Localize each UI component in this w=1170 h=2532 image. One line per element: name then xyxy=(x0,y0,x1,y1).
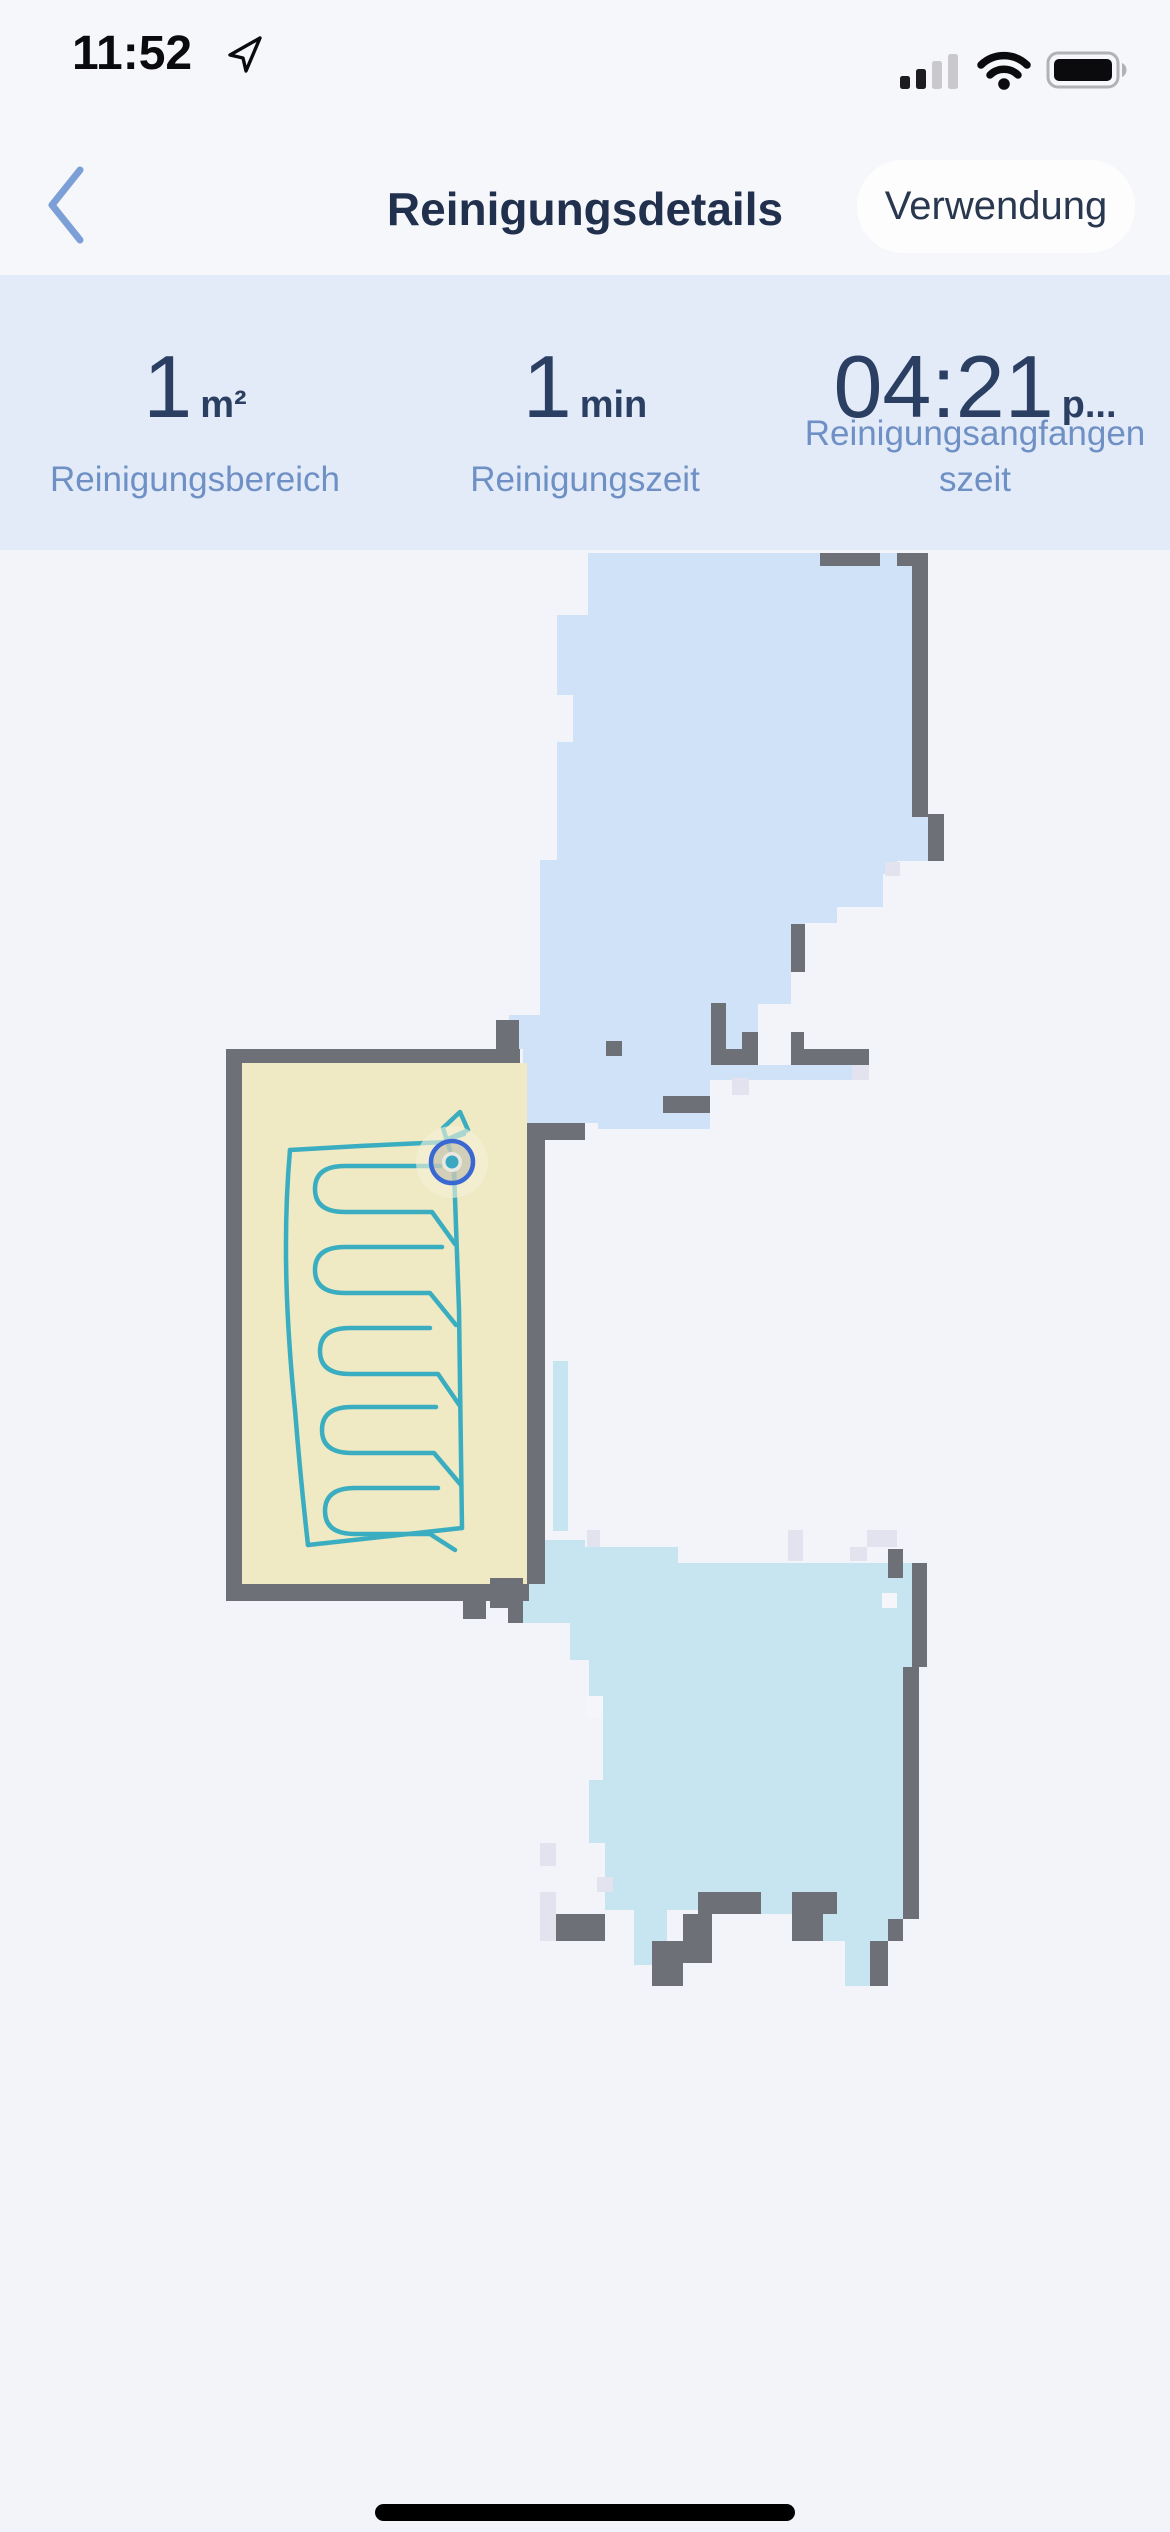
wall-segment xyxy=(912,1563,927,1667)
map-cell xyxy=(788,1530,803,1561)
map-cell xyxy=(852,1065,869,1080)
top-chrome: 11:52 xyxy=(0,0,1170,275)
cellular-signal-icon xyxy=(900,50,962,95)
map-cell xyxy=(597,1877,613,1892)
cleaning-start-label2: szeit xyxy=(740,460,1170,500)
cleaned-room-shape xyxy=(242,1063,527,1584)
wall-segment xyxy=(792,1914,823,1941)
wall-segment xyxy=(663,1096,710,1113)
map-cell xyxy=(587,1696,603,1718)
map-canvas[interactable] xyxy=(0,550,1170,2532)
wall-segment xyxy=(527,1123,585,1140)
wall-segment xyxy=(606,1041,622,1056)
map-cell xyxy=(732,1078,749,1095)
cleaning-start-label: Reinigungsangfangen xyxy=(740,414,1170,454)
wall-segment xyxy=(888,1549,903,1578)
stat-cleaning-area: 1 m² Reinigungsbereich xyxy=(0,275,390,550)
robot-marker-dot xyxy=(446,1156,459,1169)
battery-icon xyxy=(1046,50,1130,95)
location-services-icon xyxy=(226,34,268,83)
wall-segment xyxy=(226,1049,520,1063)
map-cell xyxy=(540,1843,556,1866)
status-time: 11:52 xyxy=(72,26,192,81)
status-icons xyxy=(900,50,1130,95)
wall-segment xyxy=(527,1123,545,1584)
wall-segment xyxy=(508,1608,523,1623)
wall-segment xyxy=(870,1941,888,1986)
wall-segment xyxy=(791,1049,869,1065)
map-cell xyxy=(867,1530,897,1547)
wall-segment xyxy=(928,814,944,861)
wall-segment xyxy=(652,1941,683,1986)
wall-segment xyxy=(792,1892,837,1914)
cleaning-area-value: 1 xyxy=(143,332,192,442)
map-cell xyxy=(882,1593,897,1608)
map-cell xyxy=(850,1547,867,1561)
wall-segment xyxy=(226,1049,242,1601)
wall-segment xyxy=(463,1601,486,1619)
wall-segment xyxy=(903,1667,919,1919)
cleaning-area-unit: m² xyxy=(200,386,246,424)
wall-segment xyxy=(226,1584,529,1601)
wall-segment xyxy=(912,565,928,817)
wall-segment xyxy=(496,1020,519,1049)
wall-segment xyxy=(820,553,880,566)
wall-segment xyxy=(791,1032,804,1049)
wall-segment xyxy=(897,553,928,566)
wall-segment xyxy=(490,1578,523,1608)
wall-segment xyxy=(711,1049,758,1065)
map-svg xyxy=(0,550,1170,2532)
usage-button[interactable]: Verwendung xyxy=(857,160,1135,253)
stat-cleaning-start-time: 04:21 p... Reinigungsangfangen szeit xyxy=(780,275,1170,550)
map-cell xyxy=(540,1892,556,1941)
wall-segment xyxy=(698,1892,761,1914)
home-indicator[interactable] xyxy=(375,2504,795,2521)
map-cell xyxy=(587,1530,600,1547)
wall-segment xyxy=(683,1914,712,1963)
wifi-icon xyxy=(976,50,1032,95)
wall-segment xyxy=(791,924,805,972)
map-cell xyxy=(553,1361,568,1531)
map-cell xyxy=(885,862,900,876)
cleaning-time-unit: min xyxy=(580,386,648,424)
wall-segment xyxy=(556,1914,605,1941)
stats-band: 1 m² Reinigungsbereich 1 min Reinigungsz… xyxy=(0,275,1170,550)
stat-cleaning-time: 1 min Reinigungszeit xyxy=(390,275,780,550)
wall-segment xyxy=(888,1919,903,1941)
cleaning-time-value: 1 xyxy=(523,332,572,442)
